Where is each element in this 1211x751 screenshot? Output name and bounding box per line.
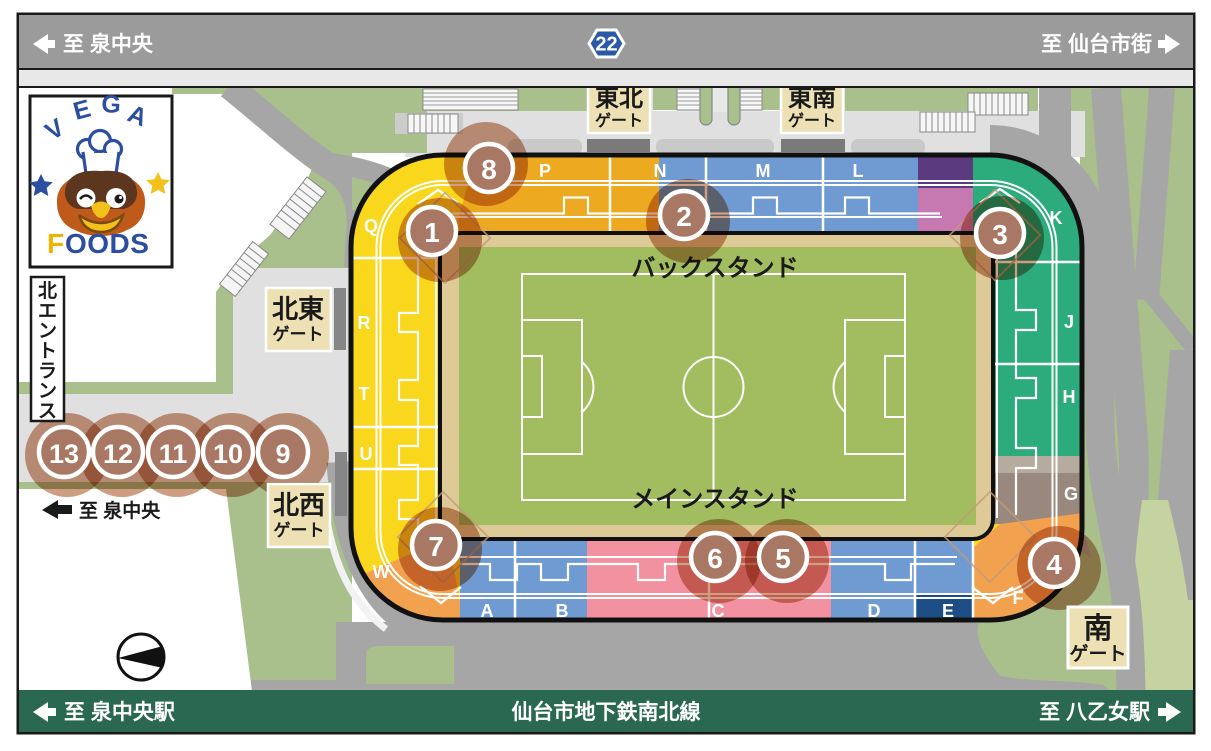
svg-text:13: 13	[49, 439, 79, 469]
svg-text:ラ: ラ	[38, 361, 57, 382]
svg-text:F: F	[47, 228, 64, 259]
svg-text:至 泉中央駅: 至 泉中央駅	[64, 700, 176, 724]
svg-text:エ: エ	[38, 301, 57, 322]
svg-text:至 仙台市街: 至 仙台市街	[1041, 32, 1152, 56]
svg-text:東北: 東北	[595, 85, 643, 112]
svg-text:6: 6	[707, 543, 723, 574]
svg-text:ゲート: ゲート	[1069, 643, 1126, 665]
svg-text:仙台市地下鉄南北線: 仙台市地下鉄南北線	[512, 700, 701, 724]
svg-text:U: U	[360, 444, 373, 464]
svg-text:ゲート: ゲート	[274, 520, 325, 540]
svg-text:G: G	[101, 90, 122, 119]
svg-text:T: T	[359, 384, 370, 404]
svg-text:OODS: OODS	[65, 228, 149, 259]
svg-text:ゲート: ゲート	[273, 324, 324, 344]
svg-text:K: K	[1050, 208, 1063, 228]
svg-text:H: H	[1063, 387, 1076, 407]
svg-text:ス: ス	[38, 401, 57, 422]
svg-text:ゲート: ゲート	[788, 111, 836, 130]
svg-text:12: 12	[103, 439, 133, 469]
svg-text:南: 南	[1083, 612, 1112, 645]
svg-text:ン: ン	[38, 321, 57, 342]
svg-text:至 八乙女駅: 至 八乙女駅	[1039, 700, 1151, 724]
svg-text:ゲート: ゲート	[595, 111, 643, 130]
svg-text:M: M	[756, 161, 771, 181]
svg-text:9: 9	[275, 439, 290, 469]
svg-text:11: 11	[159, 439, 188, 469]
svg-text:至 泉中央: 至 泉中央	[79, 499, 161, 522]
svg-text:22: 22	[595, 34, 617, 56]
svg-text:1: 1	[424, 217, 440, 248]
svg-text:東南: 東南	[788, 85, 836, 112]
svg-text:Q: Q	[364, 216, 378, 236]
svg-text:北西: 北西	[273, 490, 325, 520]
svg-text:ン: ン	[38, 381, 57, 402]
svg-text:3: 3	[992, 219, 1008, 250]
svg-text:5: 5	[775, 543, 791, 574]
svg-text:R: R	[358, 313, 371, 333]
svg-text:W: W	[373, 562, 390, 582]
svg-text:2: 2	[676, 201, 692, 232]
svg-text:4: 4	[1046, 549, 1062, 580]
svg-text:G: G	[1064, 484, 1078, 504]
svg-text:F: F	[1013, 588, 1024, 608]
svg-text:ト: ト	[38, 341, 57, 362]
svg-text:P: P	[539, 161, 551, 181]
svg-text:メインスタンド: メインスタンド	[631, 486, 799, 513]
svg-text:バックスタンド: バックスタンド	[631, 255, 798, 282]
svg-text:7: 7	[428, 531, 444, 562]
svg-text:北: 北	[38, 280, 57, 302]
svg-text:J: J	[1064, 312, 1074, 332]
svg-text:N: N	[654, 161, 667, 181]
svg-text:北東: 北東	[272, 294, 324, 324]
svg-text:10: 10	[213, 439, 243, 469]
svg-text:8: 8	[481, 154, 497, 185]
svg-text:至 泉中央: 至 泉中央	[63, 32, 154, 56]
svg-text:L: L	[853, 161, 864, 181]
